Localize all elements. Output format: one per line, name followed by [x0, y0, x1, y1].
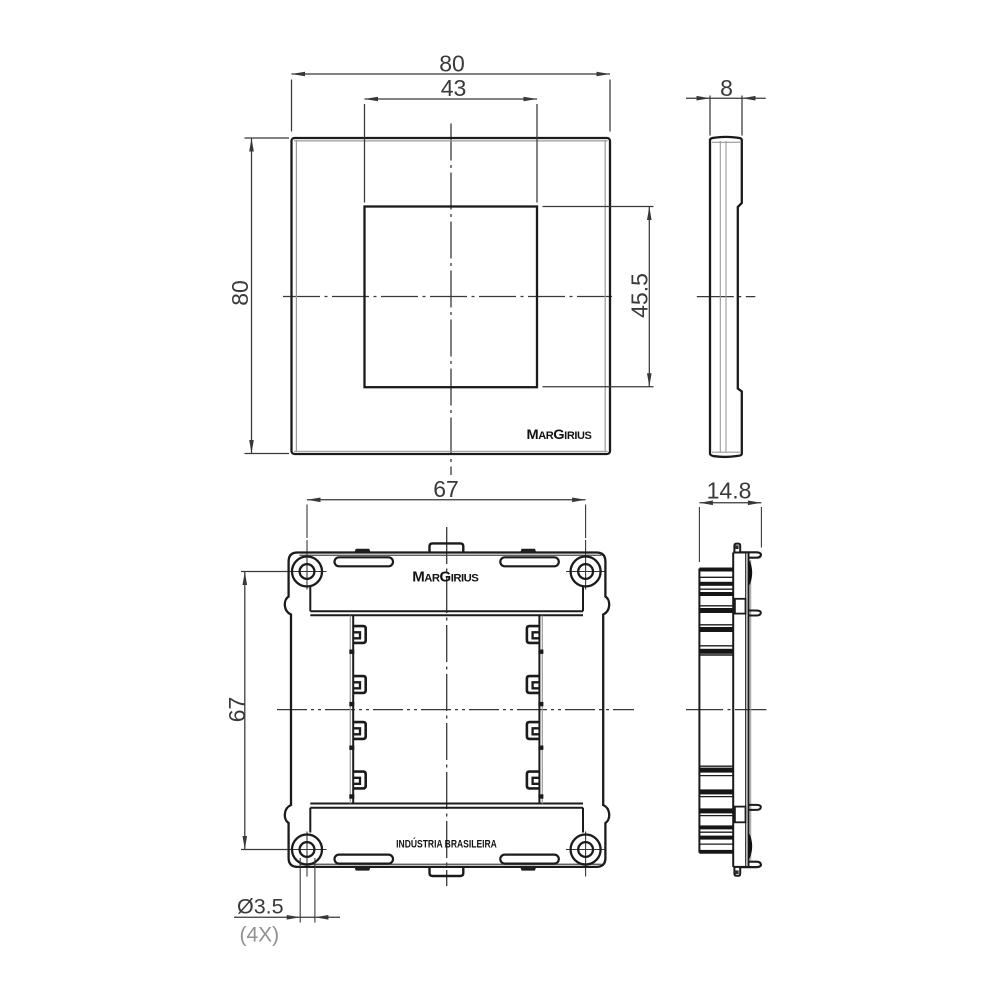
svg-text:67: 67: [433, 476, 459, 502]
svg-text:MARGIRIUS: MARGIRIUS: [527, 427, 592, 443]
svg-text:80: 80: [439, 51, 465, 77]
svg-text:43: 43: [441, 75, 467, 101]
svg-text:8: 8: [720, 75, 733, 101]
svg-text:INDÚSTRIA BRASILEIRA: INDÚSTRIA BRASILEIRA: [396, 838, 497, 851]
svg-text:14.8: 14.8: [707, 478, 752, 504]
svg-text:80: 80: [227, 280, 253, 306]
svg-text:(4X): (4X): [240, 924, 280, 947]
svg-text:67: 67: [224, 697, 250, 723]
svg-text:45.5: 45.5: [627, 273, 653, 318]
svg-text:Ø3.5: Ø3.5: [237, 895, 284, 919]
